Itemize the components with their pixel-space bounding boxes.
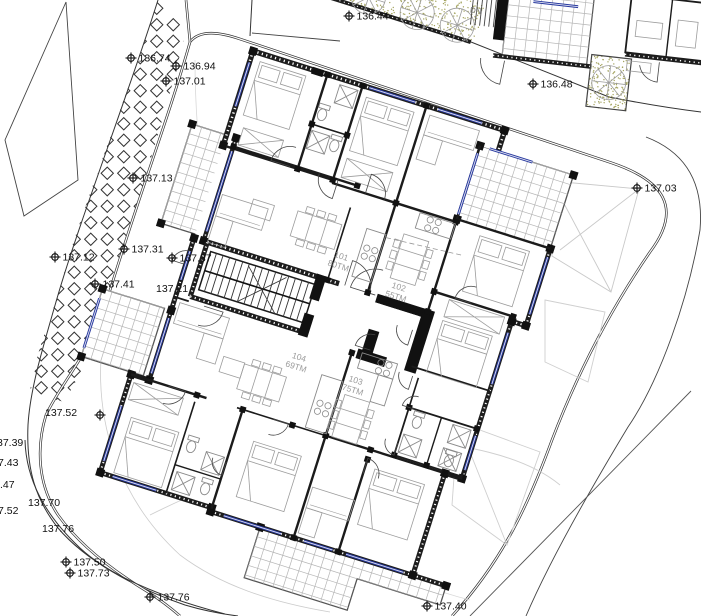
svg-text:7.52: 7.52 — [0, 505, 19, 517]
svg-text:137.37: 137.37 — [180, 253, 212, 265]
svg-text:7.43: 7.43 — [0, 457, 19, 469]
svg-text:136.74: 136.74 — [139, 53, 171, 65]
svg-text:136.94: 136.94 — [184, 61, 216, 73]
svg-text:137.52: 137.52 — [45, 407, 77, 419]
svg-text:137.31: 137.31 — [132, 244, 164, 256]
svg-text:136.44: 136.44 — [357, 11, 389, 23]
svg-text:137.01: 137.01 — [174, 76, 206, 88]
svg-text:DN: DN — [470, 6, 483, 16]
svg-text:137.13: 137.13 — [141, 173, 173, 185]
svg-text:136.48: 136.48 — [541, 79, 573, 91]
svg-text:137.03: 137.03 — [645, 183, 677, 195]
svg-text:137.70: 137.70 — [28, 497, 60, 509]
svg-text:137.41: 137.41 — [103, 279, 135, 291]
svg-text:137.12: 137.12 — [63, 252, 95, 264]
svg-text:.47: .47 — [0, 479, 15, 491]
svg-text:137.21: 137.21 — [156, 283, 188, 295]
svg-text:137.73: 137.73 — [78, 568, 110, 580]
svg-text:137.76: 137.76 — [42, 523, 74, 535]
svg-text:37.39: 37.39 — [0, 437, 23, 449]
svg-text:137.76: 137.76 — [158, 592, 190, 604]
svg-text:137.40: 137.40 — [435, 601, 467, 613]
